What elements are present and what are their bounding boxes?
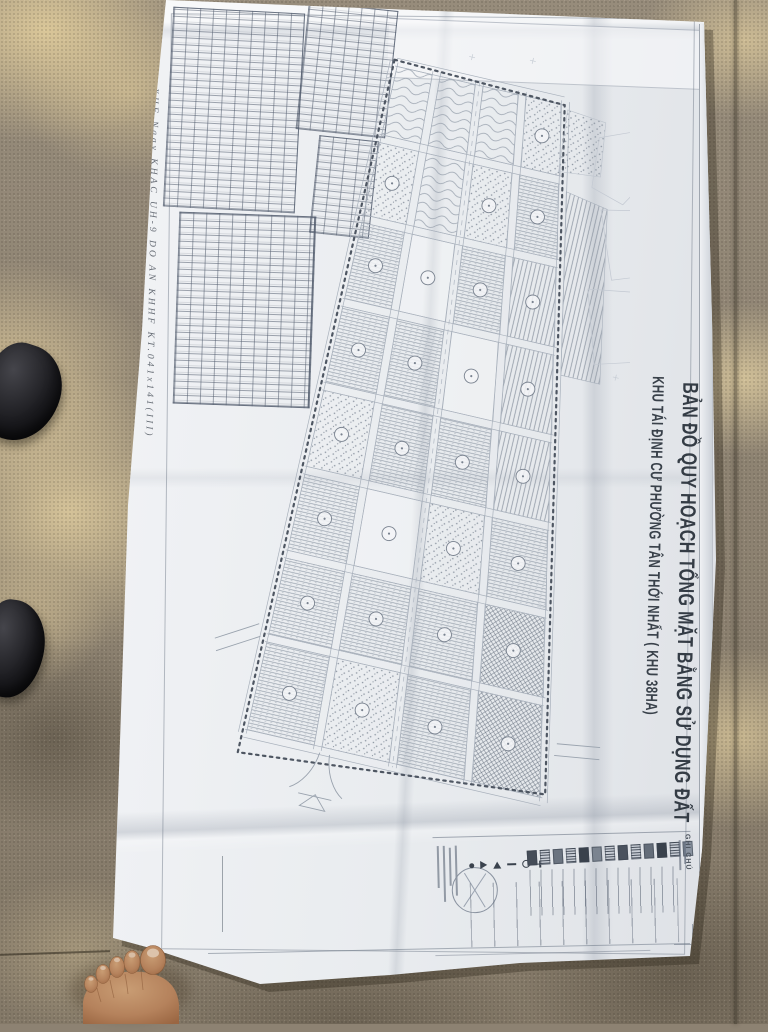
big-toenail [147,949,159,958]
legend-left-text-line [437,846,440,888]
site-layout-group [182,18,630,838]
legend-swatch [656,842,667,858]
legend-swatch [643,843,654,859]
floor-tile-seam [734,0,737,1024]
legend-left-text-line [443,846,446,902]
legend-bottom-rule [435,950,650,956]
legend-swatch [592,846,603,862]
triangle-up-icon [493,861,501,868]
legend-block: GHI CHÚ [433,831,694,962]
legend-swatch [553,849,564,865]
legend-swatch [540,849,551,865]
site-plan-map [150,18,630,838]
triangle-right-icon [480,861,487,869]
legend-swatch [579,847,590,863]
bottom-annotation-text-line [222,856,223,932]
dot-symbol-icon [469,863,474,868]
legend-entry-text-lines [470,878,680,947]
legend-title: GHI CHÚ [684,834,692,871]
legend-swatch [630,844,641,860]
legend-swatch [605,846,616,862]
dash-symbol-icon [507,863,516,866]
legend-swatch [566,848,577,864]
legend-swatch [527,850,538,866]
legend-left-text-line [449,848,451,886]
legend-swatches [527,841,694,866]
bare-foot [76,944,188,1024]
legend-swatch [618,845,629,861]
